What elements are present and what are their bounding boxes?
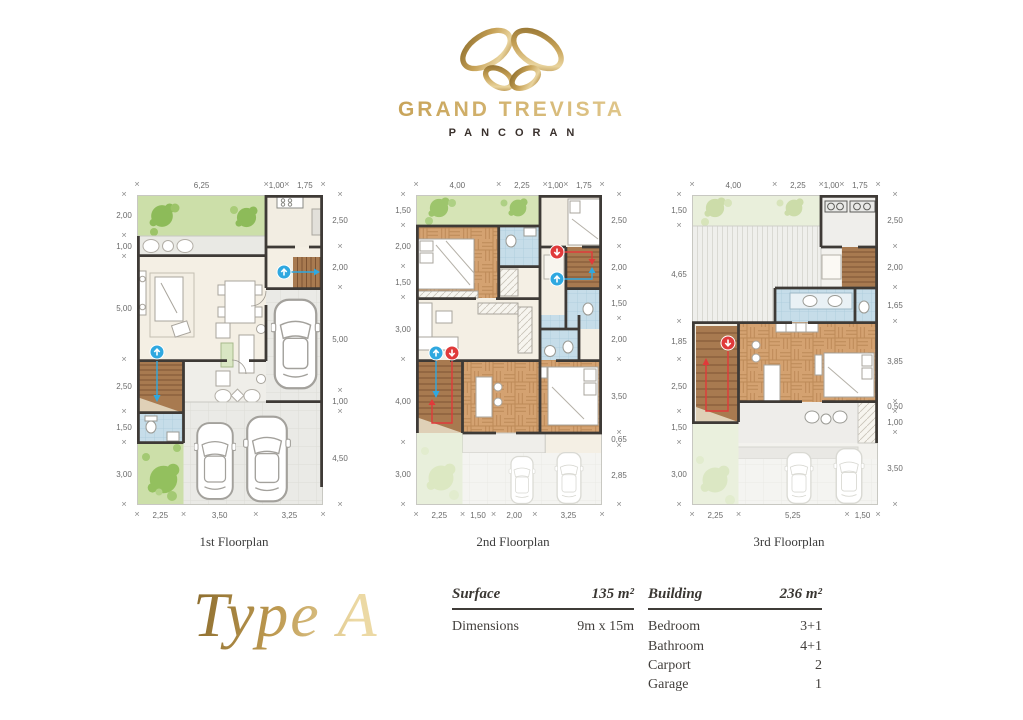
logo-block: GRAND TREVISTA PANCORAN (0, 24, 1023, 139)
type-title: Type A (193, 578, 379, 652)
spec-row-dimensions: Dimensions 9m x 15m (452, 619, 634, 635)
dimension-strip-left: ✕✕✕✕✕✕✕2,001,005,002,501,503,00 (111, 195, 137, 505)
dimension-strip-bottom: ✕✕✕✕2,253,503,25 (137, 505, 323, 525)
brochure-page: GRAND TREVISTA PANCORAN ✕✕✕✕6,251,001,75… (0, 0, 1023, 720)
spec-surface-label: Surface (452, 586, 500, 603)
stair-up-marker (277, 265, 291, 279)
spec-table-surface: Surface 135 m² Dimensions 9m x 15m (452, 586, 634, 635)
spec-bathroom-label: Bathroom (648, 639, 704, 655)
dimension-strip-right: ✕✕✕✕✕✕✕✕2,502,001,502,003,500,652,85 (602, 195, 636, 505)
floorplan-1-group: ✕✕✕✕6,251,001,75 ✕✕✕✕✕✕✕2,001,005,002,50… (111, 175, 357, 555)
spec-bathroom-value: 4+1 (800, 639, 822, 655)
dimension-strip-top: ✕✕✕✕✕4,002,251,001,75 (692, 175, 878, 195)
floorplan-2-drawing (416, 195, 602, 505)
brand-title: GRAND TREVISTA (0, 98, 1023, 122)
floorplan-3-label: 3rd Floorplan (666, 525, 912, 555)
stair-up-marker (550, 272, 564, 286)
spec-garage-value: 1 (815, 677, 822, 693)
dimension-strip-bottom: ✕✕✕✕2,255,251,50 (692, 505, 878, 525)
dimension-strip-right: ✕✕✕✕✕✕✕✕2,502,001,653,850,501,003,50 (878, 195, 912, 505)
floorplan-3-group: ✕✕✕✕✕4,002,251,001,75 ✕✕✕✕✕✕✕1,504,651,8… (666, 175, 912, 555)
floorplan-1-drawing (137, 195, 323, 505)
stair-up-marker (429, 346, 443, 360)
brand-subtitle: PANCORAN (0, 127, 1023, 139)
spec-row-garage: Garage 1 (648, 677, 822, 693)
dimension-strip-bottom: ✕✕✕✕✕2,251,502,003,25 (416, 505, 602, 525)
dimension-strip-left: ✕✕✕✕✕✕✕1,504,651,852,501,503,00 (666, 195, 692, 505)
stair-down-marker (445, 346, 459, 360)
spec-building-value: 236 m² (780, 586, 822, 603)
spec-row-bathroom: Bathroom 4+1 (648, 639, 822, 655)
spec-carport-value: 2 (815, 658, 822, 674)
dimension-strip-top: ✕✕✕✕✕4,002,251,001,75 (416, 175, 602, 195)
spec-dimensions-label: Dimensions (452, 619, 519, 635)
floorplan-2-label: 2nd Floorplan (390, 525, 636, 555)
stair-down-marker (550, 245, 564, 259)
spec-table-building: Building 236 m² Bedroom 3+1 Bathroom 4+1… (648, 586, 822, 693)
spec-bedroom-label: Bedroom (648, 619, 700, 635)
floorplan-3-drawing (692, 195, 878, 505)
floorplan-2-group: ✕✕✕✕✕4,002,251,001,75 ✕✕✕✕✕✕✕1,502,001,5… (390, 175, 636, 555)
spec-row-bedroom: Bedroom 3+1 (648, 619, 822, 635)
dimension-strip-top: ✕✕✕✕6,251,001,75 (137, 175, 323, 195)
stair-down-marker (721, 336, 735, 350)
butterfly-ribbon-icon (453, 24, 571, 94)
spec-garage-label: Garage (648, 677, 688, 693)
spec-dimensions-value: 9m x 15m (577, 619, 634, 635)
dimension-strip-left: ✕✕✕✕✕✕✕1,502,001,503,004,003,00 (390, 195, 416, 505)
spec-carport-label: Carport (648, 658, 691, 674)
floorplan-1-label: 1st Floorplan (111, 525, 357, 555)
stair-up-marker (150, 345, 164, 359)
spec-bedroom-value: 3+1 (800, 619, 822, 635)
spec-row-carport: Carport 2 (648, 658, 822, 674)
dimension-strip-right: ✕✕✕✕✕✕2,502,005,001,004,50 (323, 195, 357, 505)
spec-surface-value: 135 m² (592, 586, 634, 603)
spec-building-label: Building (648, 586, 702, 603)
